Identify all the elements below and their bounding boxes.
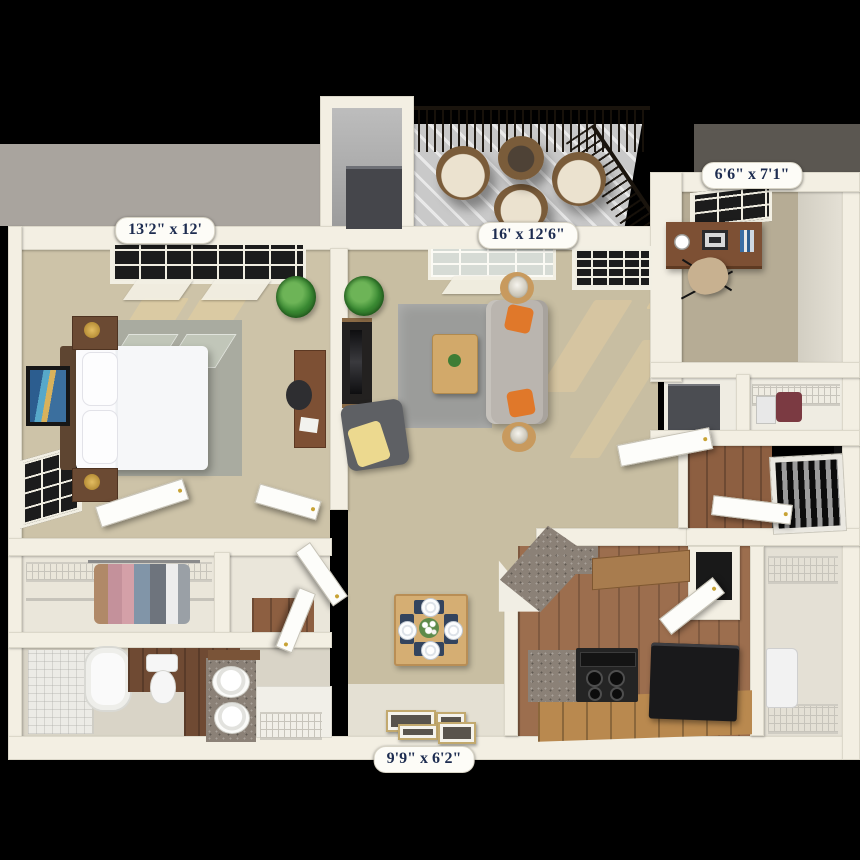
flower-centerpiece [419,618,439,638]
plate [421,641,440,660]
patio-chair [436,146,490,200]
stove-burner [608,670,625,687]
bathroom-wire-shelf [260,712,322,740]
vanity-sink [214,702,250,734]
coffee-table-plant [448,354,461,367]
patio-chair [552,152,606,206]
stove-burner [610,687,624,701]
bed-pillow [82,352,118,406]
refrigerator [649,642,740,721]
vanity-sink [212,666,250,698]
hanging-clothes [94,564,190,624]
plate [398,621,417,640]
vanity-shelf [208,650,260,660]
den-wall-inner-face [798,192,842,362]
table-lamp [508,276,528,298]
picture-frame [438,722,476,744]
stove-burner [586,670,603,687]
potted-plant [276,276,316,318]
washer-unit [766,648,798,708]
dimension-label-den: 6'6" x 7'1" [702,162,803,189]
pantry-divider-wall [750,546,764,736]
desk-papers [299,417,319,433]
background-band-left [0,144,322,226]
entry-living-wall [678,446,688,528]
closet-rod [88,560,200,563]
table-lamp [510,426,528,444]
bed-pillow [82,410,118,464]
patio-table [498,136,544,180]
pantry-wire-shelf [768,556,838,584]
bedroom-desk-chair [286,380,312,410]
floor-plan-canvas: 13'2" x 12' 16' x 12'6" 6'6" x 7'1" 9'9"… [0,0,860,860]
stove-back-panel [580,652,636,667]
living-window-grid [572,246,652,290]
plate [421,598,440,617]
pantry-wire-shelf [768,704,838,734]
plate [444,621,463,640]
water-heater-unit [346,166,402,229]
closet-stored-boxes [756,396,776,424]
dimension-label-bedroom: 13'2" x 12' [115,217,215,244]
nightstand-lamp [84,322,100,338]
toilet-bowl [150,670,176,704]
hall-closet-divider [736,374,750,434]
picture-frame [398,724,438,740]
living-window [428,246,556,280]
desk-clock [674,234,690,250]
tv-screen [350,330,362,394]
closet-stored-bag [776,392,802,422]
desk-laptop [702,230,728,250]
den-wall-left [650,172,682,382]
hall-closet-wall-top [650,362,860,378]
wall-right [842,172,860,760]
bedroom-wall-bottom [8,538,332,556]
wall-art [26,366,70,426]
dimension-label-kitchen: 9'9" x 6'2" [374,746,475,773]
bathtub [84,646,132,712]
potted-plant [344,276,384,316]
throw-pillow-orange [504,304,535,335]
counter-segment [528,650,582,702]
dimension-label-living-room: 16' x 12'6" [478,222,578,249]
kitchen-wall-left [504,594,518,736]
desk-books [740,230,754,252]
bedroom-top-windows [110,242,306,284]
stove-burner [588,687,602,701]
furnace-unit [668,384,720,432]
nightstand-lamp [84,474,100,490]
throw-pillow-orange [506,388,536,418]
